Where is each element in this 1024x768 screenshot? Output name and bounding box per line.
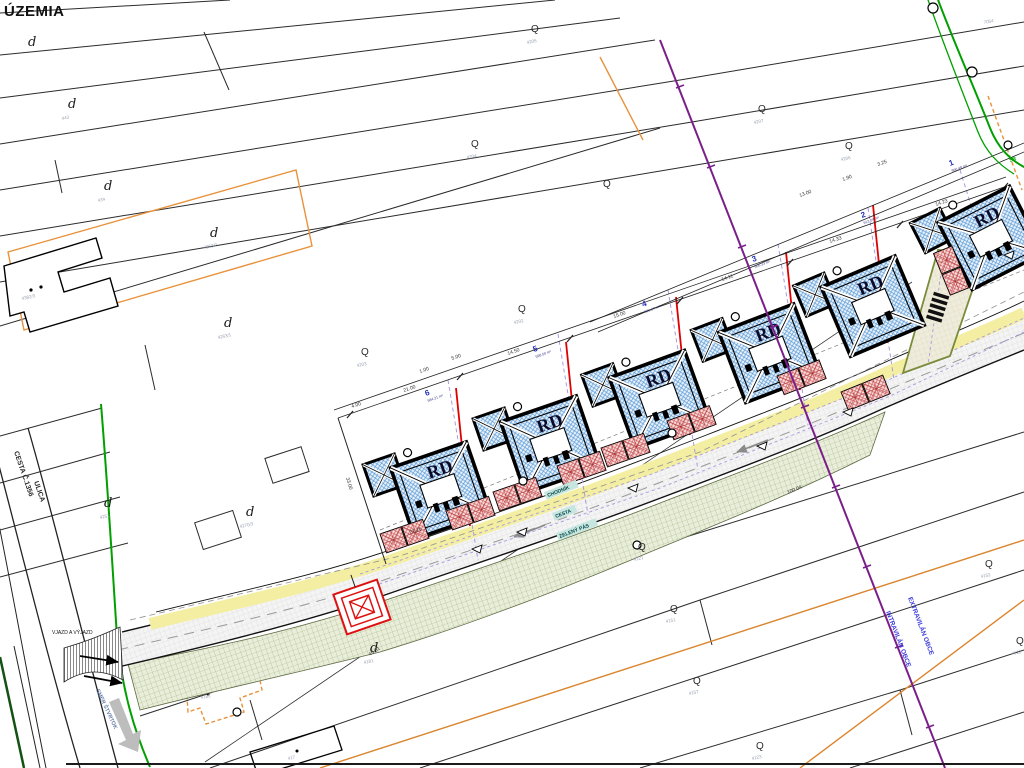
- landuse-symbol-d: d: [104, 496, 112, 511]
- parcel-number: 434: [97, 196, 106, 203]
- parcel-number: 4207: [753, 118, 764, 125]
- landuse-symbol-q: Q: [531, 24, 539, 35]
- landuse-symbol-d: d: [246, 505, 254, 520]
- house-rd-3: RD: [691, 292, 821, 412]
- parcel-number: 4151: [665, 617, 676, 624]
- orange-segment-top: [600, 57, 643, 140]
- boundary-outside-label: EXTRAVILÁN OBCE: [906, 595, 937, 656]
- site-plan-canvas: RD RD RD RD RD RD ÚZEMIA CESTA Č.1356 UL…: [0, 0, 1024, 768]
- parcel-number: 4203: [356, 361, 367, 368]
- landuse-symbol-q: Q: [693, 676, 701, 687]
- landuse-symbol-d: d: [224, 316, 232, 331]
- landuse-symbol-d: d: [210, 226, 218, 241]
- entrance-label: VJAZD A VÝJAZD: [52, 629, 93, 636]
- dimension-label: 4.00: [351, 401, 362, 410]
- landuse-symbol-q: Q: [985, 559, 993, 570]
- plot-number: 3: [751, 254, 759, 264]
- dimension-label: 1.90: [842, 174, 853, 183]
- landuse-symbol-d: d: [28, 35, 36, 50]
- plot-number: 6: [424, 388, 432, 398]
- plot-number: 1: [948, 158, 956, 168]
- parcel-number: 4181: [363, 658, 374, 665]
- boundary-inside-label: INTRAVILÁN OBCE: [884, 609, 914, 668]
- bottom-buildings: [207, 693, 343, 768]
- landuse-symbols-d: dddddddd: [28, 35, 378, 656]
- parcel-number: 4204: [466, 153, 477, 160]
- landuse-symbol-q: Q: [845, 141, 853, 152]
- parcel-number: 4152: [980, 572, 991, 579]
- parcel-number: 443: [61, 114, 70, 121]
- parcel-number: 4122: [1011, 649, 1022, 656]
- parcel-number: 4206: [840, 155, 851, 162]
- parcel-number: 4205: [526, 38, 537, 45]
- parcel-number: 4123: [751, 754, 762, 761]
- site-plan-drawing: RD RD RD RD RD RD ÚZEMIA CESTA Č.1356 UL…: [0, 0, 1024, 768]
- landuse-symbol-d: d: [68, 97, 76, 112]
- dimension-label: 14.23: [935, 198, 949, 208]
- landuse-symbol-q: Q: [603, 179, 611, 190]
- landuse-symbol-q: Q: [1016, 636, 1024, 647]
- parcel-number: 7054: [983, 18, 994, 25]
- green-belt-band: [128, 412, 885, 710]
- parcel-number: 4263/2: [203, 242, 218, 250]
- landuse-symbol-q: Q: [518, 304, 526, 315]
- landuse-symbol-q: Q: [756, 741, 764, 752]
- dimension-label: 1.00: [419, 366, 430, 375]
- plot-number: 4: [641, 299, 649, 309]
- landuse-symbol-q: Q: [670, 604, 678, 615]
- dimension-label: 33.00: [344, 477, 353, 491]
- parcel-number: 4182: [200, 693, 211, 700]
- dimension-label: 13.00: [799, 189, 813, 199]
- parcel-number: 4263/1: [217, 332, 232, 340]
- parcel-number: 4121: [633, 555, 644, 562]
- landuse-symbol-q: Q: [758, 104, 766, 115]
- dimension-label: 5.00: [451, 353, 462, 362]
- dimension-label: 3.25: [877, 159, 888, 168]
- page-title: ÚZEMIA: [4, 2, 65, 20]
- parcel-number: 4157: [688, 689, 699, 696]
- plot-number: 2: [860, 210, 868, 220]
- landuse-symbol-d: d: [104, 179, 112, 194]
- landuse-symbol-q: Q: [638, 542, 646, 553]
- house-rd-2: RD: [793, 244, 924, 366]
- landuse-symbol-q: Q: [471, 139, 479, 150]
- landuse-symbol-q: Q: [361, 347, 369, 358]
- parcel-number: 4270/3: [239, 521, 254, 529]
- parcel-number: 417: [287, 754, 296, 761]
- parcel-number: 4202: [513, 318, 524, 325]
